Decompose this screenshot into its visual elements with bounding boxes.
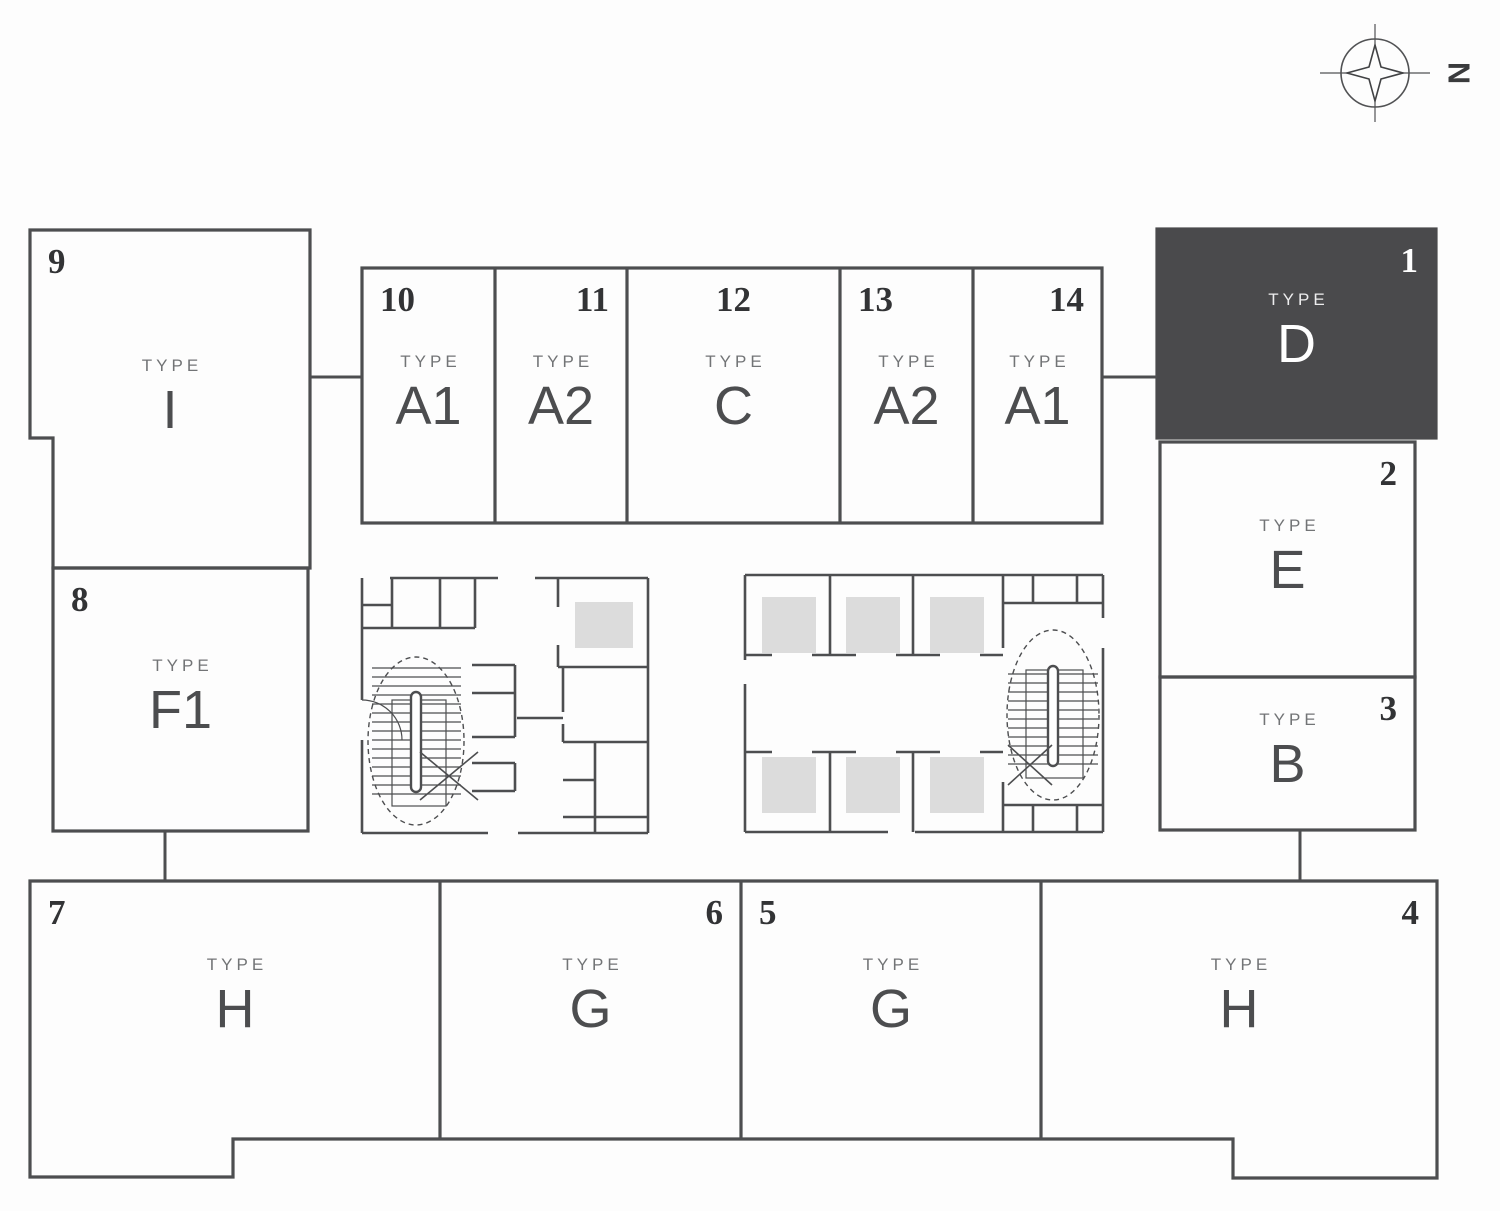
unit-type-label: TYPE bbox=[138, 357, 202, 374]
unit-5[interactable]: 5 TYPE G bbox=[741, 881, 1041, 1139]
right-core bbox=[745, 575, 1103, 832]
unit-8[interactable]: 8 TYPE F1 bbox=[53, 568, 308, 831]
unit-type-label: TYPE bbox=[396, 353, 460, 370]
left-core-shaft bbox=[575, 602, 633, 648]
unit-number: 12 bbox=[716, 282, 751, 317]
left-stair-rail bbox=[411, 692, 421, 792]
unit-number: 3 bbox=[1380, 691, 1398, 726]
unit-3[interactable]: 3 TYPE B bbox=[1160, 677, 1415, 830]
unit-type-letter: G bbox=[870, 978, 912, 1040]
unit-type-label: TYPE bbox=[529, 353, 593, 370]
unit-number: 11 bbox=[576, 282, 609, 317]
unit-number: 10 bbox=[380, 282, 415, 317]
unit-number: 8 bbox=[71, 582, 89, 617]
unit-type-letter: A2 bbox=[873, 375, 939, 437]
unit-1[interactable]: 1 TYPE D bbox=[1157, 229, 1436, 438]
unit-number: 7 bbox=[48, 895, 66, 930]
unit-type-letter: I bbox=[162, 379, 177, 441]
unit-9[interactable]: 9 TYPE I bbox=[30, 230, 310, 568]
unit-type-letter: A1 bbox=[1004, 375, 1070, 437]
unit-2[interactable]: 2 TYPE E bbox=[1160, 442, 1415, 677]
unit-type-letter: D bbox=[1277, 313, 1316, 375]
unit-number: 4 bbox=[1402, 895, 1420, 930]
unit-7[interactable]: 7 TYPE H bbox=[30, 881, 440, 1139]
unit-number: 5 bbox=[759, 895, 777, 930]
left-core bbox=[362, 578, 648, 833]
unit-type-letter: F1 bbox=[149, 679, 212, 741]
unit-type-letter: H bbox=[216, 978, 255, 1040]
unit-type-label: TYPE bbox=[1255, 711, 1319, 728]
unit-number: 14 bbox=[1049, 282, 1084, 317]
unit-type-label: TYPE bbox=[1255, 517, 1319, 534]
unit-type-letter: A1 bbox=[395, 375, 461, 437]
unit-number: 2 bbox=[1380, 456, 1398, 491]
unit-number: 9 bbox=[48, 244, 66, 279]
unit-type-letter: E bbox=[1269, 539, 1305, 601]
unit-type-label: TYPE bbox=[874, 353, 938, 370]
unit-type-label: TYPE bbox=[558, 956, 622, 973]
unit-4[interactable]: 4 TYPE H bbox=[1041, 881, 1437, 1139]
unit-type-label: TYPE bbox=[148, 657, 212, 674]
unit-type-letter: B bbox=[1269, 733, 1305, 795]
unit-number: 6 bbox=[706, 895, 724, 930]
unit-number: 1 bbox=[1401, 243, 1419, 278]
unit-type-letter: C bbox=[714, 375, 753, 437]
lift-shafts bbox=[762, 597, 984, 813]
unit-10[interactable]: 10 TYPE A1 bbox=[362, 268, 495, 523]
unit-type-label: TYPE bbox=[203, 956, 267, 973]
unit-12[interactable]: 12 TYPE C bbox=[627, 268, 840, 523]
unit-type-letter: H bbox=[1220, 978, 1259, 1040]
compass-star-icon bbox=[1347, 45, 1403, 101]
unit-14[interactable]: 14 TYPE A1 bbox=[973, 268, 1102, 523]
unit-13[interactable]: 13 TYPE A2 bbox=[840, 268, 973, 523]
unit-type-label: TYPE bbox=[1264, 291, 1328, 308]
unit-6[interactable]: 6 TYPE G bbox=[440, 881, 741, 1139]
unit-type-letter: A2 bbox=[528, 375, 594, 437]
unit-type-label: TYPE bbox=[1005, 353, 1069, 370]
floor-plan: N 1 TYPE D 2 TYPE E 3 TYPE B 4 TYPE H 5 … bbox=[0, 0, 1500, 1211]
unit-11[interactable]: 11 TYPE A2 bbox=[495, 268, 627, 523]
compass-north-label: N bbox=[1442, 62, 1477, 84]
unit-type-label: TYPE bbox=[701, 353, 765, 370]
right-stair-rail bbox=[1048, 666, 1058, 766]
unit-number: 13 bbox=[858, 282, 893, 317]
unit-type-label: TYPE bbox=[859, 956, 923, 973]
compass: N bbox=[1320, 24, 1477, 122]
unit-type-letter: G bbox=[569, 978, 611, 1040]
unit-type-label: TYPE bbox=[1207, 956, 1271, 973]
right-stair-direction bbox=[1008, 745, 1052, 785]
